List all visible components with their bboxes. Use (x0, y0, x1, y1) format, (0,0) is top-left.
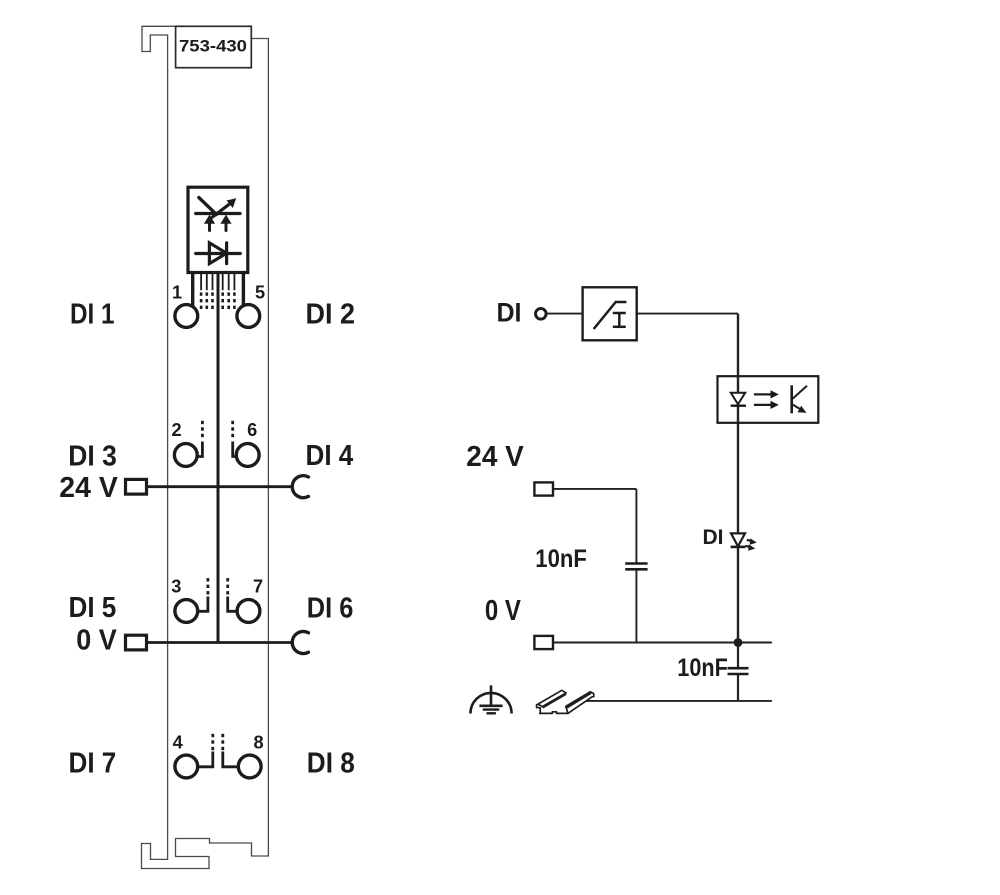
svg-text:DI 8: DI 8 (307, 748, 355, 780)
svg-text:1: 1 (172, 283, 182, 303)
svg-text:5: 5 (255, 283, 265, 303)
svg-text:DI 7: DI 7 (69, 748, 117, 780)
svg-text:DI 4: DI 4 (306, 440, 354, 472)
svg-text:DI: DI (703, 525, 724, 549)
svg-text:753-430: 753-430 (179, 38, 247, 56)
svg-text:4: 4 (173, 733, 184, 753)
svg-text:DI: DI (497, 297, 522, 327)
svg-text:24 V: 24 V (466, 441, 524, 473)
svg-text:2: 2 (171, 420, 181, 440)
svg-text:3: 3 (171, 577, 181, 597)
svg-text:DI 3: DI 3 (68, 441, 117, 473)
svg-text:10nF: 10nF (535, 545, 587, 573)
svg-text:DI 6: DI 6 (307, 593, 354, 625)
svg-text:DI 1: DI 1 (70, 299, 115, 331)
svg-text:DI 2: DI 2 (306, 299, 356, 331)
svg-text:DI 5: DI 5 (69, 592, 117, 624)
svg-text:8: 8 (254, 733, 264, 753)
svg-text:0 V: 0 V (76, 625, 117, 657)
svg-text:0 V: 0 V (485, 595, 521, 627)
svg-text:6: 6 (247, 420, 257, 440)
svg-text:7: 7 (253, 577, 263, 597)
svg-text:24 V: 24 V (59, 472, 118, 504)
svg-text:10nF: 10nF (677, 654, 728, 682)
